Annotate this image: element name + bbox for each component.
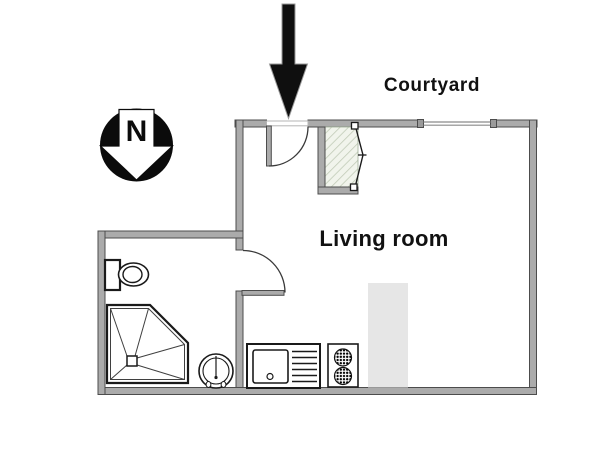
wall-right xyxy=(530,120,537,395)
entrance-threshold xyxy=(267,121,309,126)
shower-drain xyxy=(127,356,137,366)
washbasin-tap-left xyxy=(206,382,211,388)
stove-burner-top xyxy=(335,349,352,366)
interior-door xyxy=(242,251,285,296)
interior-door-leaf xyxy=(242,291,284,296)
wall-bathroom-left xyxy=(98,231,105,395)
window-jamb-right xyxy=(491,120,497,128)
floor-plan-drawing: N xyxy=(0,0,600,450)
entrance-door-leaf xyxy=(267,126,272,166)
courtyard-label: Courtyard xyxy=(384,75,480,97)
kitchen-sink xyxy=(247,344,320,388)
shower xyxy=(107,305,188,383)
counter-block xyxy=(368,283,408,388)
toilet-bowl-inner xyxy=(123,267,142,283)
compass-north-letter: N xyxy=(126,115,148,148)
window-jamb-left xyxy=(418,120,424,128)
washbasin xyxy=(199,354,233,388)
entrance-arrow xyxy=(270,4,308,119)
interior-door-swing-arc xyxy=(243,251,285,293)
stove xyxy=(328,344,358,387)
toilet xyxy=(105,260,149,290)
floor-plan-canvas: N Courtyard Living room xyxy=(0,0,600,450)
closet-hatched-interior xyxy=(325,127,358,188)
window xyxy=(418,120,497,128)
closet xyxy=(318,123,367,195)
north-compass: N xyxy=(100,109,173,182)
wall-top-middle-segment xyxy=(308,120,418,127)
living-room-label: Living room xyxy=(319,226,448,252)
closet-hinge-bottom xyxy=(351,184,358,191)
wall-living-left-lower xyxy=(236,291,243,388)
washbasin-tap-right xyxy=(221,382,226,388)
entrance-door xyxy=(267,121,309,166)
entrance-door-swing-arc xyxy=(269,127,308,166)
closet-wall-left xyxy=(318,127,325,194)
wall-bathroom-top xyxy=(98,231,243,238)
stove-burner-bottom xyxy=(335,368,352,385)
closet-hinge-top xyxy=(352,123,359,130)
washbasin-faucet-dot xyxy=(214,376,217,379)
kitchen-sink-basin xyxy=(253,350,288,383)
